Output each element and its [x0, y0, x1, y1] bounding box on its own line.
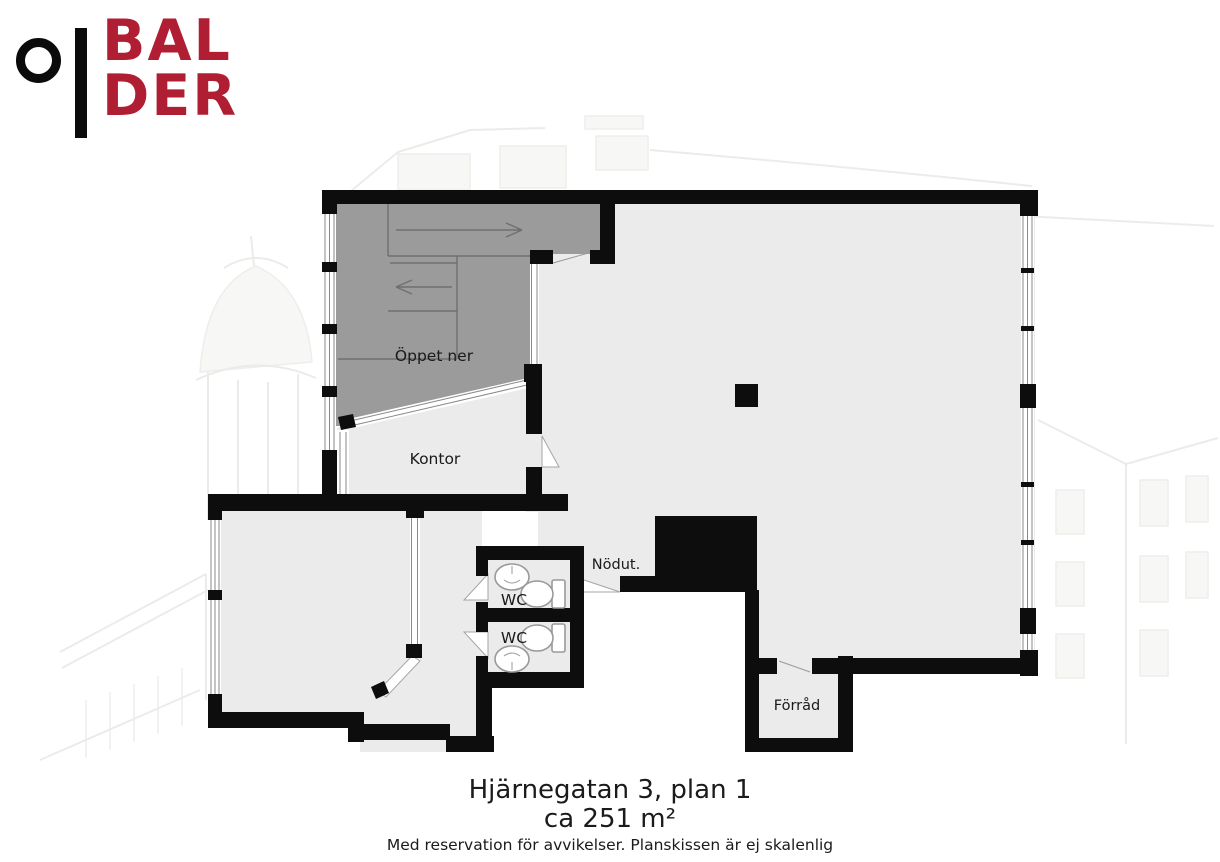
- caption: Hjärnegatan 3, plan 1 ca 251 m² Med rese…: [0, 776, 1220, 855]
- pillar: [735, 384, 758, 407]
- room-label-forrad: Förråd: [774, 697, 820, 714]
- room-label-kontor: Kontor: [410, 450, 461, 468]
- caption-disclaimer: Med reservation för avvikelser. Planskis…: [0, 835, 1220, 855]
- sink-icon: [495, 646, 529, 672]
- room-label-nodut: Nödut.: [592, 557, 640, 573]
- toilet-icon: [521, 580, 565, 608]
- room-label-oppet-ner: Öppet ner: [395, 346, 474, 365]
- room-label-wc-top: WC: [501, 591, 527, 609]
- caption-address: Hjärnegatan 3, plan 1: [0, 776, 1220, 804]
- caption-area: ca 251 m²: [0, 805, 1220, 833]
- page: BALDER: [0, 0, 1220, 862]
- room-label-wc-bottom: WC: [501, 629, 527, 647]
- floorplan: Öppet ner Kontor WC WC Nödut. Förråd: [0, 0, 1220, 862]
- toilet-icon: [521, 624, 565, 652]
